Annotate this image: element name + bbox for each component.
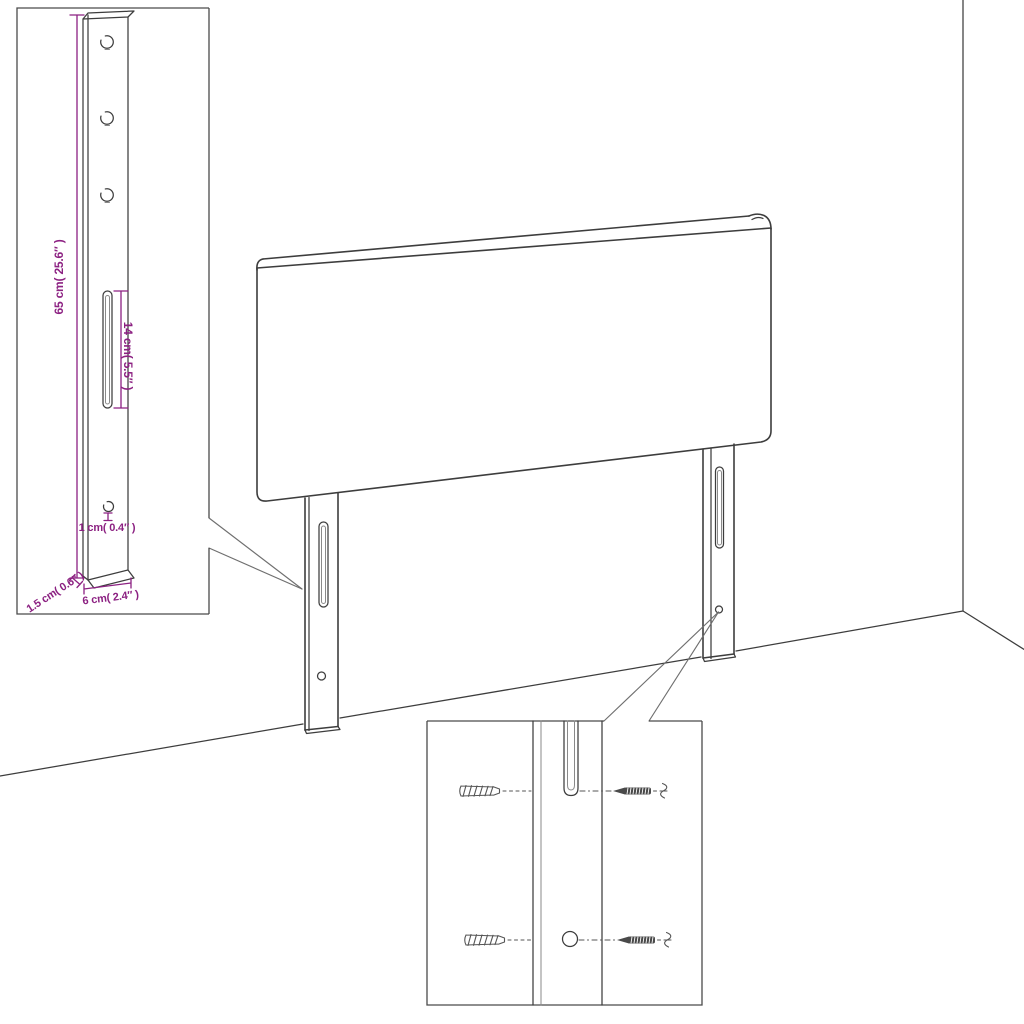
dimension-thickness: 1.5 cm( 0.6″ ) xyxy=(25,569,87,615)
leg-hole xyxy=(563,932,578,947)
dimension-height-line xyxy=(70,15,84,578)
dimension-height: 65 cm( 25.6″ ) xyxy=(52,15,84,578)
dimension-hole-label: 1 cm( 0.4″ ) xyxy=(79,522,136,534)
wall-plug-bottom xyxy=(465,935,533,946)
dimension-thickness-label: 1.5 cm( 0.6″ ) xyxy=(25,569,87,615)
dimension-slot-label: 14 cm( 5.5″ ) xyxy=(121,322,135,391)
leg-edge-view xyxy=(533,721,602,1005)
floor-line-corner-right xyxy=(963,611,1024,650)
wall-plug-top xyxy=(460,786,531,797)
dimension-width-label: 6 cm( 2.4″ ) xyxy=(82,589,140,608)
floor-line-middle xyxy=(340,657,701,718)
callout-left-leg xyxy=(209,518,302,589)
floor-line-right xyxy=(736,611,963,651)
leg-slot-channel xyxy=(564,721,578,796)
headboard-assembly-diagram: 65 cm( 25.6″ ) 14 cm( 5.5″ ) 1 cm( 0.4″ … xyxy=(0,0,1024,1024)
room-corner xyxy=(0,0,1024,776)
panel-top-right-curl xyxy=(749,214,771,229)
screw-head-squiggle xyxy=(660,784,667,799)
dimension-height-label: 65 cm( 25.6″ ) xyxy=(52,239,66,314)
callout-mounting-detail xyxy=(604,612,719,721)
screw-bottom xyxy=(617,933,671,948)
floor-line-left xyxy=(0,724,303,776)
panel-top-edge-outer xyxy=(263,216,749,259)
headboard-panel xyxy=(257,214,771,501)
panel-front-face xyxy=(257,228,771,501)
screw-top xyxy=(613,784,667,799)
screw-head-squiggle xyxy=(664,933,671,948)
leg-detail-inset: 65 cm( 25.6″ ) 14 cm( 5.5″ ) 1 cm( 0.4″ … xyxy=(17,8,209,615)
product-diagram-page: 65 cm( 25.6″ ) 14 cm( 5.5″ ) 1 cm( 0.4″ … xyxy=(0,0,1024,1024)
right-leg-face xyxy=(703,444,734,659)
headboard-left-leg xyxy=(305,493,340,734)
leg-front-view xyxy=(83,11,134,588)
mounting-detail-inset xyxy=(427,721,702,1005)
